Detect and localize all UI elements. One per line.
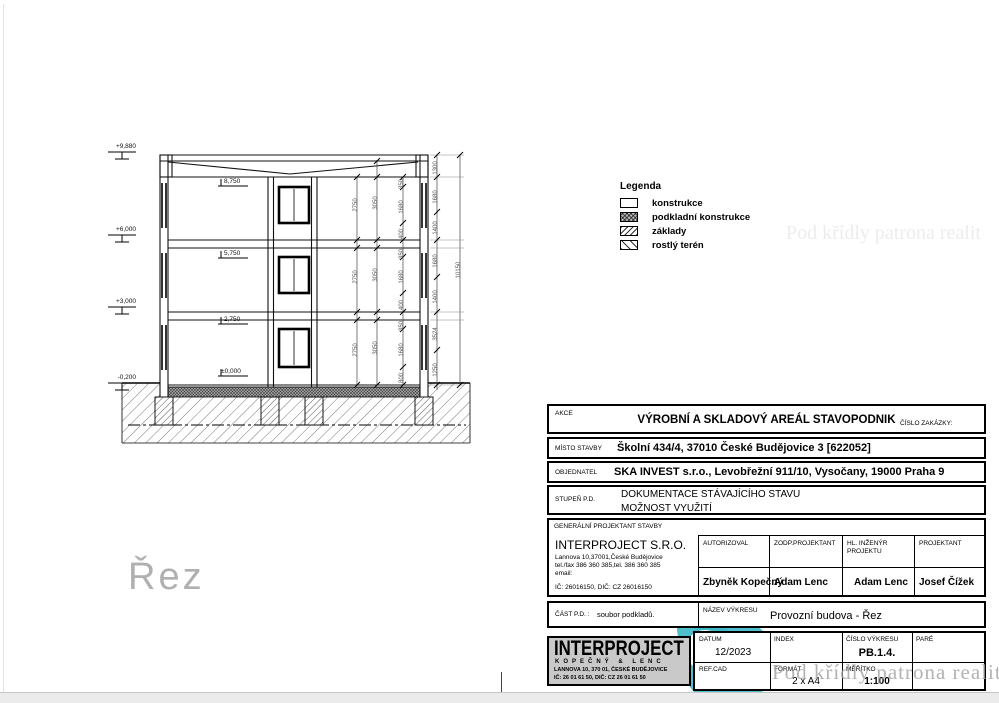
- dim-right: 1680: [433, 190, 439, 203]
- watermark-text-bottom: Pod křídly patrona realit: [772, 660, 999, 685]
- dim-clear-height: 3050: [373, 341, 379, 354]
- refcad-label: REF.CAD: [699, 666, 727, 673]
- level-label-outer: +9,880: [108, 143, 136, 150]
- legend-title: Legenda: [620, 181, 750, 192]
- misto-label: MÍSTO STAVBY: [555, 445, 602, 452]
- legend-item: základy: [620, 224, 750, 238]
- legend-label: podkladní konstrukce: [652, 212, 750, 223]
- dim-window: 400: [399, 300, 405, 310]
- legend-item: podkladní konstrukce: [620, 210, 750, 224]
- nazev-label: NÁZEV VÝKRESU: [703, 607, 758, 614]
- nazev-value: Provozní budova - Řez: [770, 610, 882, 622]
- dim-window: 400: [399, 229, 405, 239]
- datum-label: DATUM: [699, 636, 722, 643]
- dim-floor-height: 2750: [353, 343, 359, 356]
- divider: [914, 535, 915, 595]
- watermark-text-top: Pod křídly patrona realit: [786, 222, 981, 245]
- logo-line4: IČ: 26 01 61 50, DIČ: CZ 26 01 61 50: [554, 675, 689, 681]
- stupen-value-1: DOKUMENTACE STÁVAJÍCÍHO STAVU: [621, 489, 800, 500]
- role-label: AUTORIZOVAL: [703, 540, 748, 547]
- level-label-inner: 2,750: [224, 316, 240, 323]
- dim-total-height: 10150: [456, 262, 462, 279]
- level-label-outer: +3,000: [108, 298, 136, 305]
- drawing-sheet: +9,880 +6,000 +3,000 -0,200 8,750 5,750 …: [0, 0, 999, 703]
- dim-window: 1680: [399, 200, 405, 213]
- level-label-inner: 8,750: [224, 178, 240, 185]
- objednatel-value: SKA INVEST s.r.o., Levobřežní 911/10, Vy…: [614, 466, 944, 478]
- cislo-vykresu-label: ČÍSLO VÝKRESU: [846, 636, 898, 643]
- logo-line1: INTERPROJECT: [554, 639, 662, 659]
- objednatel-label: OBJEDNATEL: [555, 469, 597, 476]
- dim-right: 1680: [433, 254, 439, 267]
- cast-label: ČÁST P.D. :: [555, 611, 589, 618]
- role-name: Josef Čížek: [919, 577, 974, 588]
- index-label: INDEX: [774, 636, 794, 643]
- dimension-lines: [354, 152, 464, 390]
- divider: [698, 535, 984, 536]
- pare-label: PARÉ: [916, 636, 933, 643]
- legend-swatch-podkladni: [620, 212, 638, 222]
- company-email: email:: [555, 570, 572, 577]
- dim-right: 1400: [433, 221, 439, 234]
- company-phone: tel./fax 386 360 385,tel. 386 360 385: [555, 562, 661, 569]
- titleblock-row-nazev: ČÁST P.D. : soubor podkladů. NÁZEV VÝKRE…: [547, 601, 986, 628]
- level-label-inner: 5,750: [224, 250, 240, 257]
- dim-window: 1680: [399, 343, 405, 356]
- dim-right: 1250: [433, 363, 439, 376]
- level-label-outer: +6,000: [108, 226, 136, 233]
- cast-value: soubor podkladů.: [597, 610, 655, 619]
- dim-window: 350: [399, 321, 405, 331]
- misto-value: Školní 434/4, 37010 České Budějovice 3 […: [617, 442, 871, 454]
- subbase-layer: [168, 387, 420, 397]
- dim-floor-height: 2750: [353, 270, 359, 283]
- legend-label: konstrukce: [652, 198, 703, 209]
- dim-right: 1300: [433, 161, 439, 174]
- dim-window: 800: [399, 373, 405, 383]
- divider: [698, 567, 984, 568]
- dim-clear-height: 3050: [373, 196, 379, 209]
- company-name: INTERPROJECT S.R.O.: [555, 538, 686, 552]
- dim-floor-height: 2750: [353, 198, 359, 211]
- fold-mark-line: [501, 672, 502, 692]
- dim-window: 350: [399, 179, 405, 189]
- footer-strip: [0, 692, 999, 703]
- legend-label: základy: [652, 226, 686, 237]
- role-name: Adam Lenc: [854, 577, 908, 588]
- legend-label: rostlý terén: [652, 240, 704, 251]
- titleblock-row-akce: AKCE VÝROBNÍ A SKLADOVÝ AREÁL STAVOPODNI…: [547, 404, 986, 434]
- company-ic: IČ: 26016150, DIČ: CZ 26016150: [555, 584, 652, 591]
- legend-item: konstrukce: [620, 196, 750, 210]
- titleblock-row-stupen: STUPEŇ P.D. DOKUMENTACE STÁVAJÍCÍHO STAV…: [547, 485, 986, 515]
- interproject-logo: INTERPROJECT KOPEČNÝ & LENC LANNOVA 10, …: [547, 636, 691, 686]
- gen-projektant-label: GENERÁLNÍ PROJEKTANT STAVBY: [554, 523, 662, 530]
- dim-right: 1400: [433, 290, 439, 303]
- dim-window: 1680: [399, 270, 405, 283]
- level-label-outer: -0,200: [108, 374, 136, 381]
- divider: [842, 535, 843, 595]
- dim-right: 3524: [433, 327, 439, 340]
- role-label: ZODP.PROJEKTANT: [774, 540, 836, 547]
- dim-window: 350: [399, 249, 405, 259]
- level-label-inner: ±0,000: [221, 368, 241, 375]
- legend-swatch-konstrukce: [620, 198, 638, 208]
- roof: [160, 155, 428, 177]
- divider: [698, 535, 699, 595]
- role-label: HL. INŽENÝR PROJEKTU: [847, 540, 909, 556]
- stupen-label: STUPEŇ P.D.: [555, 496, 595, 503]
- legend-swatch-rostly-teren: [620, 240, 638, 250]
- role-name: Zbyněk Kopečný: [703, 577, 783, 588]
- datum-value: 12/2023: [715, 647, 751, 658]
- titleblock-row-objednatel: OBJEDNATEL SKA INVEST s.r.o., Levobřežní…: [547, 461, 986, 483]
- titleblock-row-projektant: GENERÁLNÍ PROJEKTANT STAVBY INTERPROJECT…: [547, 518, 986, 597]
- doors: [279, 187, 309, 367]
- cislo-vykresu-value: PB.1.4.: [842, 647, 912, 659]
- logo-line3: LANNOVA 10, 370 01, ČESKÉ BUDĚJOVICE: [554, 667, 689, 673]
- role-name: Adam Lenc: [774, 577, 828, 588]
- dim-clear-height: 3050: [373, 268, 379, 281]
- legend-swatch-zaklady: [620, 226, 638, 236]
- legend-item: rostlý terén: [620, 238, 750, 252]
- drawing-caption: Řez: [128, 556, 205, 599]
- role-label: PROJEKTANT: [919, 540, 962, 547]
- legend: Legenda konstrukce podkladní konstrukce …: [620, 181, 750, 252]
- level-markers: [108, 152, 248, 390]
- titleblock-row-misto: MÍSTO STAVBY Školní 434/4, 37010 České B…: [547, 437, 986, 459]
- company-address: Lannova 10,37001,České Budějovice: [555, 554, 663, 561]
- cislo-zakazky-label: ČÍSLO ZAKÁZKY:: [900, 420, 952, 427]
- divider: [698, 603, 699, 626]
- stupen-value-2: MOŽNOST VYUŽITÍ: [621, 503, 712, 514]
